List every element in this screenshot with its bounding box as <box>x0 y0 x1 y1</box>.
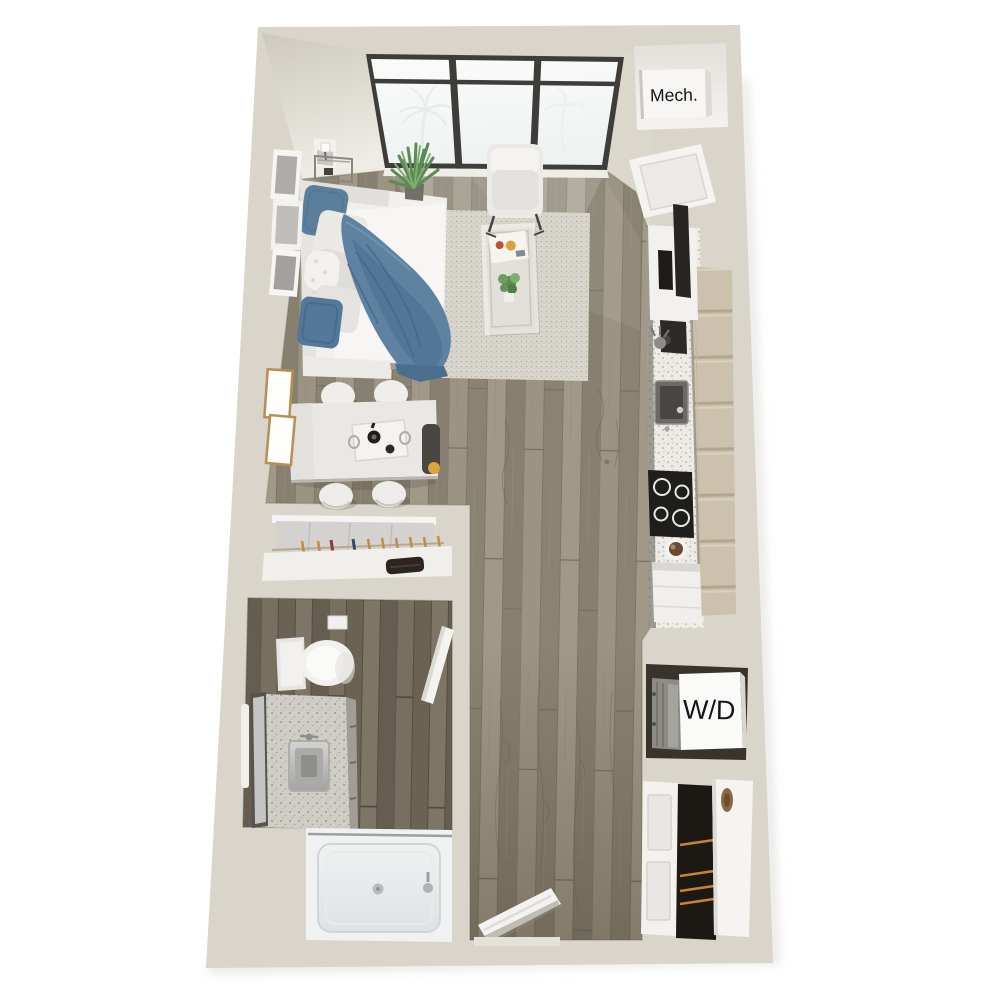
svg-text:W/D: W/D <box>683 695 736 726</box>
svg-text:Mech.: Mech. <box>650 85 698 106</box>
